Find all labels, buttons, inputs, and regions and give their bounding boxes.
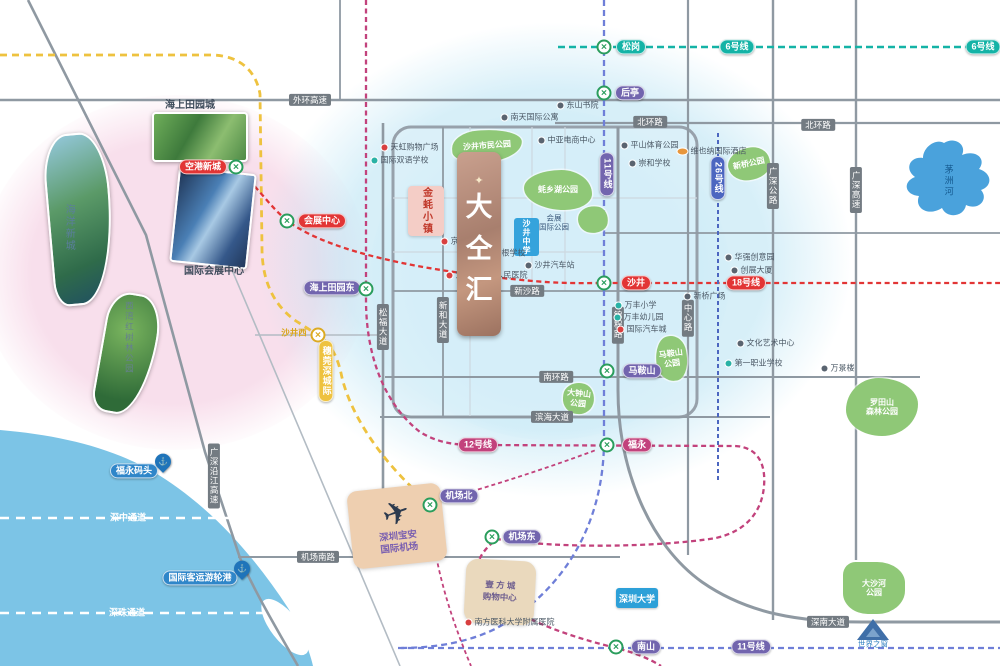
station-label-huizhanzhongxin: 会展中心 xyxy=(298,213,346,228)
road-badge-zhongxin-rd: 中心路 xyxy=(682,300,694,337)
road-badge-waihuan-expwy: 外环高速 xyxy=(289,94,331,106)
station-label-jichangbei: 机场北 xyxy=(439,488,478,503)
huizhan-intl-park-label: 会展国际公园 xyxy=(539,214,569,233)
line-badge-line6-b: 6号线 xyxy=(965,39,1000,54)
poi-label: 维也纳国际酒店 xyxy=(691,146,747,157)
poi-icon xyxy=(558,102,564,108)
poi-6: 沙井汽车站 xyxy=(526,260,575,271)
poi-label: 南方医科大学附属医院 xyxy=(475,617,555,628)
poi-icon xyxy=(615,314,621,320)
project-logo: ✦大仝汇 xyxy=(457,152,501,336)
poi-19: 第一职业学校 xyxy=(726,358,783,369)
poi-10: 平山体育公园 xyxy=(622,140,679,151)
road-badge-nanhuan-rd: 南环路 xyxy=(539,371,573,383)
road-badge-xinhe-ave: 新和大道 xyxy=(437,297,449,343)
line-badge-intercity: 穗莞深城际 xyxy=(318,340,333,402)
ferry-label-fuyong-ferry: 福永码头 xyxy=(110,463,158,478)
window-of-world-icon xyxy=(857,619,889,640)
poi-17: 创展大厦 xyxy=(732,265,773,276)
poi-icon xyxy=(466,619,472,625)
poi-label: 创展大厦 xyxy=(741,265,773,276)
maozhou-river-label: 茅洲河 xyxy=(942,165,953,198)
poi-label: 万丰小学 xyxy=(625,300,657,311)
poi-icon xyxy=(616,302,622,308)
poi-label: 国际汽车城 xyxy=(627,324,667,335)
poi-icon xyxy=(822,365,828,371)
station-label-jichangdong: 机场东 xyxy=(502,529,541,544)
station-icon-shajing: ✕ xyxy=(597,276,612,291)
poi-icon xyxy=(442,238,448,244)
exhibition-center-photo xyxy=(169,166,257,270)
poi-icon xyxy=(630,160,636,166)
poi-icon xyxy=(618,326,624,332)
poi-label: 东山书院 xyxy=(567,100,599,111)
shenzhu-corridor-label: 深珠通道 xyxy=(109,607,145,618)
station-icon-songgang: ✕ xyxy=(597,40,612,55)
poi-icon xyxy=(526,262,532,268)
road-badge-guangshen-hwy: 广深公路 xyxy=(767,163,779,209)
mall-label: 壹 方 城购物中心 xyxy=(482,579,517,605)
poi-label: 华强创意园 xyxy=(735,252,775,263)
dashahe-park: 大沙河公园 xyxy=(843,562,905,614)
poi-21: 南方医科大学附属医院 xyxy=(466,617,555,628)
poi-label: 天虹购物广场 xyxy=(391,142,439,153)
station-label-nanshan: 南山 xyxy=(631,639,661,654)
station-icon-nanshan: ✕ xyxy=(609,640,624,655)
line-badge-line11-h: 11号线 xyxy=(731,639,771,654)
ferry-label-intl-cruise-port: 国际客运游轮港 xyxy=(162,570,237,585)
poi-1: 国际双语学校 xyxy=(372,155,429,166)
oyster-town-block: 金蚝小镇 xyxy=(408,186,444,236)
poi-8: 万丰幼儿园 xyxy=(615,312,664,323)
poi-label: 国际双语学校 xyxy=(381,155,429,166)
station-icon-maanshan: ✕ xyxy=(600,364,615,379)
logo-character: 汇 xyxy=(466,270,493,312)
road-badge-beihuan-rd-2: 北环路 xyxy=(801,119,835,131)
logo-character: 大 xyxy=(466,187,493,229)
line-badge-line18: 18号线 xyxy=(726,275,766,290)
station-icon-fuyong: ✕ xyxy=(600,438,615,453)
poi-label: 第一职业学校 xyxy=(735,358,783,369)
line-badge-line12: 12号线 xyxy=(458,437,498,452)
ferry-icon: ⚓ xyxy=(158,457,168,466)
station-label-konggangxincheng: 空港新城 xyxy=(179,159,227,174)
poi-label: 文化艺术中心 xyxy=(747,338,795,349)
logo-character: 仝 xyxy=(466,229,493,271)
oyster-town-label: 金蚝小镇 xyxy=(419,187,434,235)
poi-13: 南天国际公寓 xyxy=(502,112,559,123)
line-badge-line6-a: 6号线 xyxy=(719,39,754,54)
road-badge-songfu-ave: 松福大道 xyxy=(377,304,389,350)
station-icon-jichangbei: ✕ xyxy=(423,498,438,513)
poi-9: 国际汽车城 xyxy=(618,324,667,335)
shenzhong-corridor-label: 深中通道 xyxy=(110,512,146,523)
airplane-icon: ✈ xyxy=(378,493,414,532)
road-badge-jichangnan-rd: 机场南路 xyxy=(297,551,339,563)
poi-0: 天虹购物广场 xyxy=(382,142,439,153)
university-badge: 深圳大学 xyxy=(616,588,658,608)
poi-2: 中亚电商中心 xyxy=(539,135,596,146)
poi-icon xyxy=(678,148,688,154)
poi-icon xyxy=(372,157,378,163)
line-badge-line26: 26号线 xyxy=(710,156,725,200)
road-badge-binhai-ave: 滨海大道 xyxy=(531,411,573,423)
poi-icon xyxy=(685,293,691,299)
station-label-fuyong: 福永 xyxy=(622,437,652,452)
station-icon-shajingxi: ✕ xyxy=(311,328,326,343)
poi-icon xyxy=(502,114,508,120)
poi-12: 东山书院 xyxy=(558,100,599,111)
poi-label: 崇和学校 xyxy=(639,158,671,169)
line-badge-line11-v: 11号线 xyxy=(599,152,614,196)
station-icon-haishangtianyuandong: ✕ xyxy=(359,282,374,297)
road-badge-shennan-ave: 深南大道 xyxy=(807,616,849,628)
poi-label: 新桥广场 xyxy=(694,291,726,302)
poi-label: 中亚电商中心 xyxy=(548,135,596,146)
poi-label: 万丰幼儿园 xyxy=(624,312,664,323)
station-label-haishangtianyuandong: 海上田园东 xyxy=(303,280,360,295)
road-badge-guangshen-expwy: 广深高速 xyxy=(850,167,862,213)
mangrove-park-label: 西湾红树林公园 xyxy=(124,301,135,375)
station-label-shajing: 沙井 xyxy=(621,275,651,290)
station-label-houting: 后亭 xyxy=(615,85,645,100)
poi-20: 万景楼 xyxy=(822,363,855,374)
poi-icon xyxy=(382,144,388,150)
poi-icon xyxy=(622,142,628,148)
poi-14: 维也纳国际酒店 xyxy=(678,146,747,157)
poi-16: 华强创意园 xyxy=(726,252,775,263)
station-label-songgang: 松岗 xyxy=(616,39,646,54)
haishang-tianyuan-photo xyxy=(152,112,248,162)
ferry-icon: ⚓ xyxy=(237,564,247,573)
road-badge-beihuan-rd-1: 北环路 xyxy=(633,116,667,128)
poi-15: 新桥广场 xyxy=(685,291,726,302)
station-icon-konggangxincheng: ✕ xyxy=(229,160,244,175)
poi-7: 万丰小学 xyxy=(616,300,657,311)
airport-label: 深圳宝安国际机场 xyxy=(379,529,419,558)
poi-icon xyxy=(726,360,732,366)
station-label-shajingxi: 沙井西 xyxy=(281,328,307,339)
station-label-maanshan: 马鞍山 xyxy=(622,363,661,378)
crown-icon: ✦ xyxy=(474,176,483,187)
airport-block: ✈深圳宝安国际机场 xyxy=(346,482,448,569)
poi-label: 南天国际公寓 xyxy=(511,112,559,123)
poi-label: 万景楼 xyxy=(831,363,855,374)
poi-label: 平山体育公园 xyxy=(631,140,679,151)
station-icon-houting: ✕ xyxy=(597,86,612,101)
station-icon-jichangdong: ✕ xyxy=(485,530,500,545)
ocean-newtown-label: 海洋新城 xyxy=(62,204,75,252)
poi-18: 文化艺术中心 xyxy=(738,338,795,349)
exhibition-center-label: 国际会展中心 xyxy=(184,266,244,279)
window-of-world-label: 世界之窗 xyxy=(858,639,888,648)
haishang-tianyuan-label: 海上田园城 xyxy=(165,100,215,113)
road-badge-yanjiang-expwy: 广深沿江高速 xyxy=(208,444,220,509)
poi-11: 崇和学校 xyxy=(630,158,671,169)
station-icon-huizhanzhongxin: ✕ xyxy=(280,214,295,229)
road-badge-xinsha-rd: 新沙路 xyxy=(510,285,544,297)
poi-label: 沙井汽车站 xyxy=(535,260,575,271)
map-canvas: 沙井市民公园蚝乡湖公园马鞍山公园大钟山公园罗田山森林公园大沙河公园新桥公园外环高… xyxy=(0,0,1000,666)
poi-icon xyxy=(726,254,732,260)
poi-icon xyxy=(447,272,453,278)
poi-icon xyxy=(539,137,545,143)
poi-icon xyxy=(738,340,744,346)
poi-icon xyxy=(732,267,738,273)
